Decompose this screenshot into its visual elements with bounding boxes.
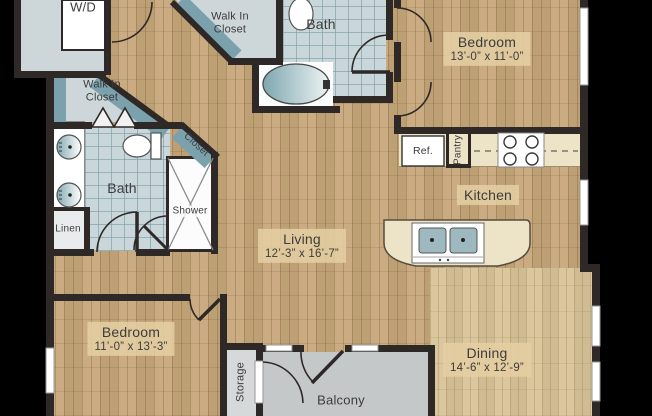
room-dimensions: 14’-6” x 12’-9” <box>450 362 524 375</box>
laundry-label: W/D <box>70 1 96 16</box>
room-name: Bedroom <box>450 34 523 50</box>
window <box>592 362 600 401</box>
vanity-counter <box>53 121 85 209</box>
label-line: Closet <box>211 23 249 36</box>
room-dimensions: 11’-0” x 13’-3” <box>94 341 167 354</box>
balcony-label: Balcony <box>317 394 365 409</box>
room-name: Bedroom <box>94 324 167 340</box>
living-label: Living 12’-3” x 16’-7” <box>258 229 346 263</box>
walk-in-closet-top-label: Walk In Closet <box>211 10 249 35</box>
bathtub-alcove <box>259 62 333 106</box>
dining-label: Dining 14’-6” x 12’-9” <box>443 343 531 377</box>
label-line: Walk In <box>83 78 121 91</box>
room-dimensions: 13’-0” x 11’-0” <box>450 51 523 64</box>
bedroom-top-label: Bedroom 13’-0” x 11’-0” <box>443 32 530 66</box>
shower-label: Shower <box>170 205 209 217</box>
bedroom-bottom-label: Bedroom 11’-0” x 13’-3” <box>87 322 174 356</box>
walk-in-closet-left-label: Walk In Closet <box>83 78 121 103</box>
window <box>592 306 600 346</box>
bath-top-label: Bath <box>306 16 336 32</box>
room-name: Dining <box>450 345 524 361</box>
bath-left-label: Bath <box>107 180 137 196</box>
refrigerator-label: Ref. <box>413 145 433 157</box>
label-line: Walk In <box>211 10 249 23</box>
wall <box>592 346 600 362</box>
wall <box>14 0 21 78</box>
wall <box>592 400 600 416</box>
room-name: Living <box>265 231 339 247</box>
pantry-label: Pantry <box>452 135 464 165</box>
label-line: Closet <box>83 91 121 104</box>
room-shower-floor <box>166 156 215 252</box>
floor-plan: W/D Walk In Closet Walk In Closet Bath B… <box>0 0 652 416</box>
linen-label: Linen <box>55 223 80 235</box>
wall <box>592 272 600 308</box>
storage-label: Storage <box>235 362 248 402</box>
room-dimensions: 12’-3” x 16’-7” <box>265 248 339 261</box>
kitchen-label: Kitchen <box>457 185 519 205</box>
